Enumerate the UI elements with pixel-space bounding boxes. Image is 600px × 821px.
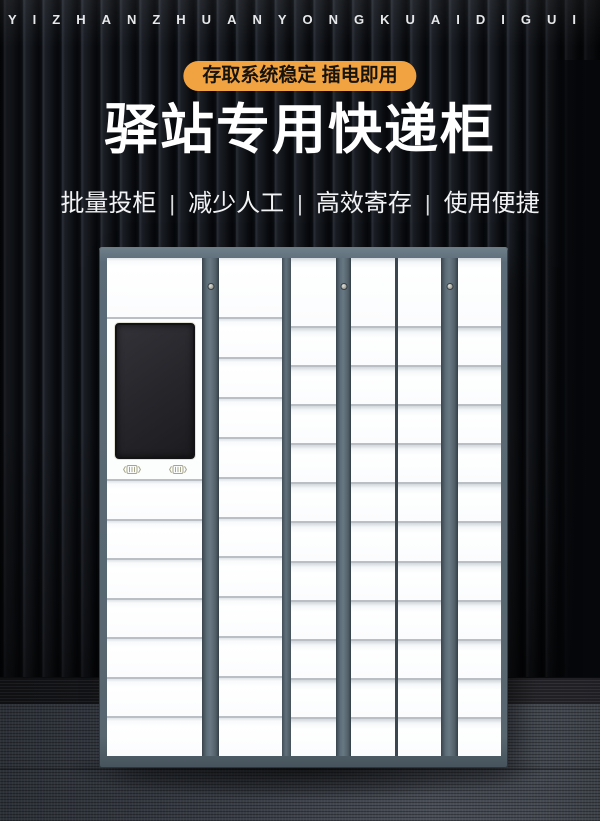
locker-door: [398, 602, 441, 639]
locker-door: [351, 328, 395, 365]
locker-door: [351, 406, 395, 443]
locker-door: [398, 523, 441, 560]
feature-list: 批量投柜 | 减少人工 | 高效寄存 | 使用便捷: [0, 188, 600, 220]
locker-door: [291, 523, 336, 560]
control-panel: [107, 319, 202, 479]
locker-door: [219, 258, 282, 317]
locker-door: [351, 445, 395, 482]
locker-door: [219, 519, 282, 557]
locker-door: [291, 445, 336, 482]
locker-door: [351, 680, 395, 717]
locker-door: [458, 258, 501, 326]
locker-column-main: [107, 258, 202, 756]
locker-door: [458, 367, 501, 404]
locker-door: [458, 602, 501, 639]
locker-door: [458, 484, 501, 521]
feature-separator: |: [425, 188, 431, 220]
mount-rail: [336, 258, 351, 756]
cabinet-body: [107, 258, 501, 756]
scanner-icon: [122, 463, 142, 476]
locker-door: [219, 479, 282, 517]
poster: YIZHANZHUANYONGKUAIDIGUI 存取系统稳定 插电即用 驿站专…: [0, 0, 600, 821]
locker-door: [351, 563, 395, 600]
locker-door: [291, 719, 336, 756]
mount-rail: [441, 258, 458, 756]
feature-separator: |: [169, 188, 175, 220]
screw-icon: [447, 284, 452, 289]
locker-door: [291, 602, 336, 639]
locker-door: [398, 367, 441, 404]
locker-door: [351, 523, 395, 560]
locker-door: [458, 523, 501, 560]
locker-door: [458, 406, 501, 443]
mount-rail: [202, 258, 219, 756]
locker-door: [458, 328, 501, 365]
locker-door: [219, 598, 282, 636]
locker-door: [107, 600, 202, 638]
locker-door: [219, 319, 282, 357]
locker-door: [291, 367, 336, 404]
poster-title: 驿站专用快递柜: [0, 97, 600, 163]
feature-item: 高效寄存: [316, 188, 412, 220]
feature-item: 使用便捷: [444, 188, 540, 220]
locker-door: [219, 638, 282, 676]
locker-column: [458, 258, 501, 756]
locker-door: [219, 399, 282, 437]
locker-door: [291, 484, 336, 521]
locker-door: [398, 258, 441, 326]
locker-door: [219, 558, 282, 596]
locker-door: [291, 258, 336, 326]
locker-door: [398, 484, 441, 521]
locker-door: [291, 328, 336, 365]
locker-door: [398, 445, 441, 482]
locker-door: [107, 521, 202, 559]
locker-door: [107, 560, 202, 598]
locker-door: [398, 563, 441, 600]
locker-door: [398, 680, 441, 717]
locker-door: [107, 718, 202, 756]
locker-door: [458, 719, 501, 756]
locker-door: [351, 602, 395, 639]
locker-door: [291, 563, 336, 600]
locker-door: [398, 719, 441, 756]
locker-door: [291, 406, 336, 443]
locker-door: [107, 639, 202, 677]
feature-item: 批量投柜: [60, 188, 156, 220]
screw-icon: [208, 284, 213, 289]
locker-door: [458, 563, 501, 600]
locker-door: [351, 258, 395, 326]
locker-door: [398, 641, 441, 678]
locker-door: [219, 678, 282, 716]
locker-door: [107, 679, 202, 717]
locker-door: [219, 439, 282, 477]
locker-door: [351, 367, 395, 404]
locker-door: [291, 680, 336, 717]
scanner-icon-row: [107, 463, 202, 476]
locker-door: [291, 641, 336, 678]
screw-icon: [341, 284, 346, 289]
locker-door: [458, 445, 501, 482]
pinyin-banner: YIZHANZHUANYONGKUAIDIGUI: [0, 12, 600, 27]
mount-rail: [282, 258, 291, 756]
feature-separator: |: [297, 188, 303, 220]
locker-door: [107, 258, 202, 317]
scanner-icon: [168, 463, 188, 476]
feature-item: 减少人工: [188, 188, 284, 220]
locker-cabinet: [99, 247, 508, 768]
locker-door: [458, 641, 501, 678]
locker-column: [351, 258, 395, 756]
kiosk-screen: [115, 323, 195, 459]
locker-door: [107, 481, 202, 519]
locker-door: [219, 359, 282, 397]
locker-door: [398, 406, 441, 443]
locker-column: [219, 258, 282, 756]
locker-door: [458, 680, 501, 717]
locker-door: [219, 718, 282, 756]
locker-door: [351, 484, 395, 521]
feature-badge: 存取系统稳定 插电即用: [183, 61, 416, 91]
locker-door: [398, 328, 441, 365]
locker-column: [398, 258, 441, 756]
locker-column: [291, 258, 336, 756]
locker-door: [351, 719, 395, 756]
locker-door: [351, 641, 395, 678]
